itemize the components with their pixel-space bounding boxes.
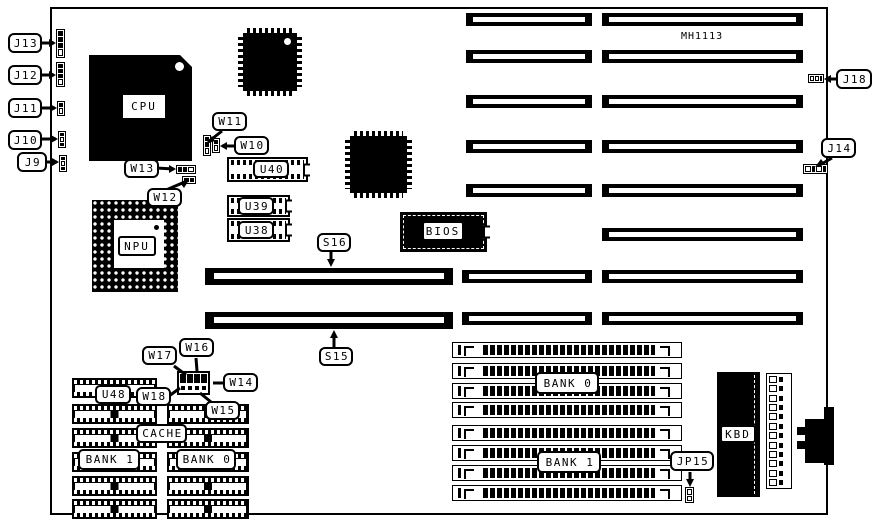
callout-w16: W16: [179, 338, 214, 357]
callout-w11: W11: [212, 112, 247, 131]
callout-j12: J12: [8, 65, 42, 85]
simm-bank0-label: BANK 0: [535, 372, 599, 394]
simm-bank1-label: BANK 1: [537, 451, 601, 473]
u39-label: U39: [238, 197, 274, 215]
callout-j11: J11: [8, 98, 42, 118]
callout-w12: W12: [147, 188, 182, 207]
callout-j18: J18: [836, 69, 872, 89]
u38-label: U38: [238, 221, 274, 239]
u40-label: U40: [253, 160, 289, 178]
callout-j13: J13: [8, 33, 42, 53]
callout-jp15: JP15: [670, 451, 714, 471]
callout-s15: S15: [319, 347, 353, 366]
cache-label: CACHE: [136, 424, 187, 443]
callout-j14: J14: [821, 138, 856, 158]
leader-lines: [0, 0, 878, 527]
callout-w10: W10: [234, 136, 269, 155]
motherboard-diagram: MH1113 CPU NPU U40 U39 U38: [0, 0, 878, 527]
callout-j9: J9: [17, 152, 47, 172]
callout-w13: W13: [124, 159, 159, 178]
cache-bank1-label: BANK 1: [78, 449, 140, 470]
u48-label: U48: [95, 385, 131, 404]
callout-j10: J10: [8, 130, 42, 150]
callout-w17: W17: [142, 346, 177, 365]
cache-bank0-label: BANK 0: [176, 449, 236, 470]
callout-w18: W18: [136, 387, 171, 406]
callout-w14: W14: [223, 373, 258, 392]
callout-w15: W15: [205, 401, 240, 420]
callout-s16: S16: [317, 233, 351, 252]
